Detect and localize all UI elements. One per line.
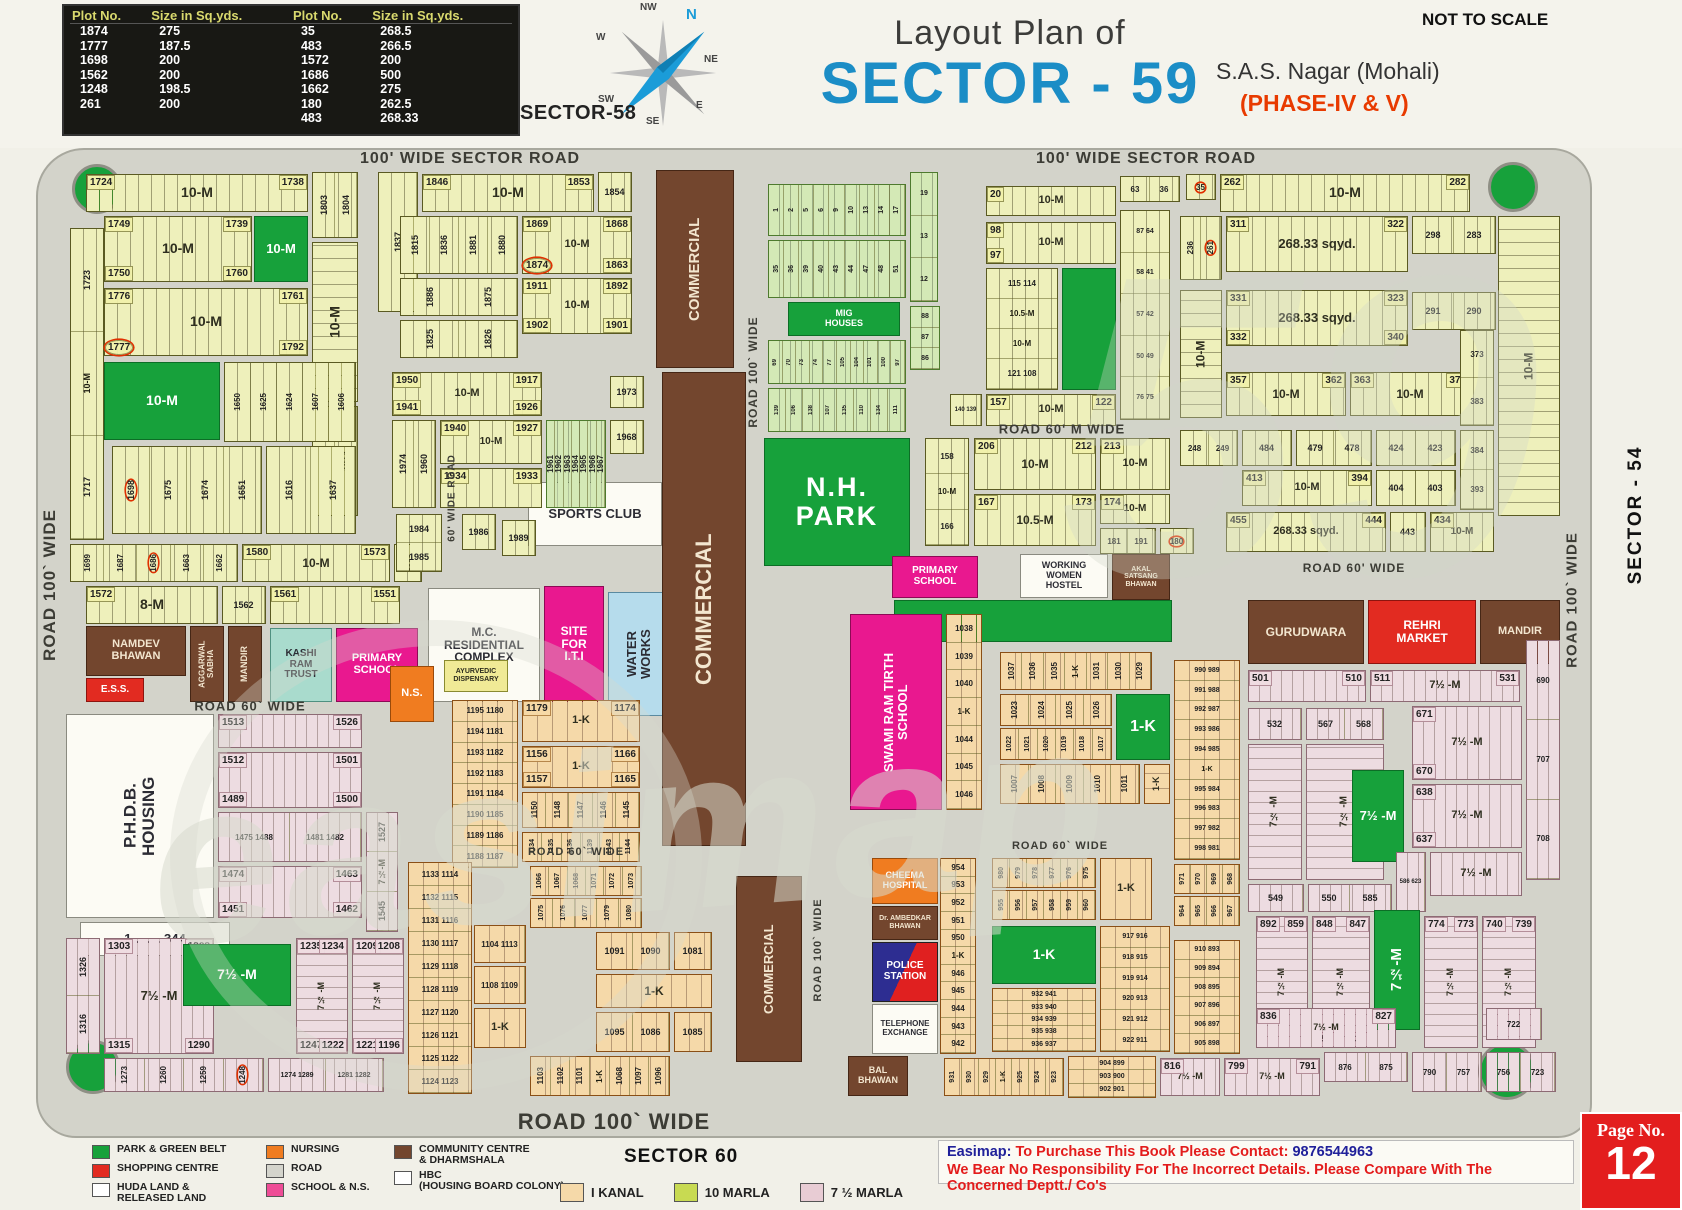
publisher-text: To Purchase This Book Please Contact:: [1016, 1144, 1289, 1160]
legend-label: SHOPPING CENTRE: [117, 1163, 219, 1174]
site-for-iti: SITE FOR I.T.I: [544, 586, 604, 702]
plot-block: 10-M413394: [1242, 470, 1372, 506]
layout-plan-page: 10-M172417381803180410-M1793181410-M1749…: [0, 0, 1682, 1210]
road-label: ROAD 100` WIDE: [1564, 532, 1581, 668]
commercial-north: COMMERCIAL: [656, 170, 734, 368]
plot-block: 910 893909 894908 895907 896906 897905 8…: [1174, 940, 1240, 1054]
plot-block: 10-M434: [1430, 512, 1494, 552]
legend-label: PARK & GREEN BELT: [117, 1144, 226, 1155]
plot-block: 10-M20: [986, 186, 1116, 216]
plot-block: 424423: [1376, 430, 1456, 466]
plot-block: 236261: [1180, 216, 1222, 280]
legend-label: 7 ½ MARLA: [831, 1187, 903, 1198]
plot-block: 550585: [1308, 884, 1392, 912]
legend-swatch: [800, 1183, 824, 1202]
rehri-market: REHRI MARKET: [1368, 600, 1476, 664]
plot-block: 7½ -M511531: [1370, 670, 1520, 702]
table-row: 483268.33: [70, 111, 512, 126]
legend-label: HBC (HOUSING BOARD COLONY): [419, 1170, 564, 1192]
plot-block: 18031804: [312, 172, 358, 238]
table-row: 1248198.51662275: [70, 82, 512, 97]
plot-block: 172310-M1717: [70, 228, 104, 540]
plot-block: 15611551: [270, 586, 400, 624]
plot-block: 888786: [910, 306, 940, 370]
plot-block: 115 11410.5-M10-M121 108: [986, 268, 1058, 390]
plot-block: 10-M1869186818741863: [522, 216, 632, 274]
compass-direction-e: E: [696, 100, 703, 111]
plot-block: 1-K: [992, 926, 1096, 984]
map-title-small: Layout Plan of: [850, 14, 1170, 53]
plot-block: 7½ -M799791: [1224, 1058, 1320, 1096]
plot-block: 1562: [222, 586, 266, 624]
plot-block: 722: [1486, 1008, 1542, 1040]
road-label: ROAD 60' WIDE: [1303, 561, 1406, 575]
road-label: ROAD 100` WIDE: [812, 898, 824, 1001]
plot-block: 10-M1749173917501760: [104, 216, 252, 282]
bal-bhawan: BAL BHAWAN: [848, 1056, 908, 1096]
plot-block: 16991687168616631662: [70, 544, 238, 582]
plot-block: 8-M1572: [86, 586, 218, 624]
not-to-scale-label: NOT TO SCALE: [1422, 10, 1602, 30]
plot-block: 1-K: [1116, 694, 1170, 760]
legend-label: NURSING: [291, 1144, 339, 1155]
plot-block: 10-M363372: [1350, 372, 1470, 416]
plot-block: 876875: [1324, 1052, 1408, 1082]
plot-block: 7½ -M836827: [1256, 1008, 1396, 1048]
plot-block: 1968: [610, 420, 644, 454]
legend-label: ROAD: [291, 1163, 322, 1174]
legend-item: I KANAL: [560, 1182, 644, 1202]
plot-block: 10-M17241738: [86, 174, 308, 212]
plot-block: 990 989991 988992 987993 986994 9851-K99…: [1174, 660, 1240, 860]
plot-block: 7½ -M: [183, 944, 291, 1006]
plot-block: 1-K11791174: [522, 700, 640, 742]
plot-block: 443: [1390, 512, 1426, 552]
ess: E.S.S.: [86, 678, 144, 702]
table-row: 1777187.5483266.5: [70, 39, 512, 54]
legend-swatch: [674, 1183, 698, 1202]
mandir-1: MANDIR: [228, 626, 262, 702]
legend-swatch: [92, 1183, 110, 1197]
plot-block: 10-M: [104, 362, 220, 440]
gurudwara: GURUDWARA: [1248, 600, 1364, 664]
legend-label: I KANAL: [591, 1187, 644, 1198]
nh-park: N.H. PARK: [764, 438, 910, 566]
table-header: Plot No.: [70, 8, 149, 24]
plot-block: 1195 11801194 11811193 11821192 11831191…: [452, 700, 518, 868]
publisher-note: Easimap: To Purchase This Book Please Co…: [938, 1140, 1574, 1184]
plot-size-table: Plot No.Size in Sq.yds.Plot No.Size in S…: [62, 4, 520, 136]
plot-block: 980979978977976975: [992, 858, 1096, 888]
plot-block: 955956957958959960: [992, 890, 1096, 920]
plot-block: 7½ -M816: [1160, 1058, 1220, 1096]
plot-block: 11501148114711461145: [522, 792, 640, 828]
plot-block: 16161637: [266, 446, 356, 534]
plot-block: 10-M357362: [1226, 372, 1346, 416]
commercial-south: COMMERCIAL: [736, 876, 802, 1062]
plot-block: 16501625162416071606: [224, 362, 356, 442]
plot-block: 15277½-M1545: [366, 812, 398, 932]
plot-block: 1973: [610, 376, 644, 408]
legend-label: HUDA LAND & RELEASED LAND: [117, 1182, 206, 1204]
plot-block: [1062, 268, 1116, 390]
plot-block: 7½ -M: [1430, 852, 1522, 896]
table-header: Size in Sq.yds.: [149, 8, 291, 24]
plot-block: 181191: [1100, 528, 1156, 554]
commercial-middle: COMMERCIAL: [662, 372, 746, 846]
compass-direction-ne: NE: [704, 54, 718, 65]
plot-block: 384393: [1460, 430, 1494, 510]
plot-block: 10-M174: [1100, 494, 1170, 524]
primary-school-2: PRIMARY SCHOOL: [892, 556, 978, 598]
legend-item: HUDA LAND & RELEASED LAND: [92, 1182, 226, 1204]
plot-block: 7½ -M774773: [1424, 916, 1478, 1048]
legend-label: SCHOOL & N.S.: [291, 1182, 370, 1193]
plot-block: 106610671068107110721073: [530, 866, 642, 896]
plot-block: 10-M: [254, 216, 308, 282]
plot-block: 1-K: [474, 1008, 526, 1048]
plot-block: 532: [1248, 708, 1302, 740]
plot-block: 373383: [1460, 330, 1494, 426]
plot-block: 10071008100910101011: [1000, 764, 1140, 804]
plot-block: 1108 1109: [474, 966, 526, 1004]
plot-block: 1854: [598, 172, 632, 212]
plot-block: 10-M213: [1100, 438, 1170, 490]
plot-block: 9549539529519501-K946945944943942: [940, 858, 976, 1054]
plot-block: 1961196219631964196519661967: [546, 420, 606, 508]
legend-item: COMMUNITY CENTRE & DHARMSHALA: [394, 1144, 564, 1166]
plot-block: 10911090: [596, 932, 670, 970]
plot-block: 291290: [1412, 292, 1496, 330]
plot-block: 7½ -M: [1248, 744, 1302, 880]
plot-block: 7½ -M1235123412471222: [296, 938, 348, 1054]
plot-block: 10-M18461853: [422, 174, 594, 212]
legend-swatch: [560, 1183, 584, 1202]
plot-block: 10-M: [1498, 216, 1560, 516]
disclaimer-text: We Bear No Responsibility For The Incorr…: [947, 1162, 1565, 1194]
legend-swatch: [394, 1171, 412, 1185]
plot-block: 102210211020101910181017: [1000, 728, 1112, 760]
plot-block: 10951086: [596, 1012, 670, 1052]
dr-ambedkar-bhawan: Dr. AMBEDKAR BHAWAN: [872, 906, 938, 940]
plot-block: 140 139: [950, 394, 982, 426]
legend-item: NURSING: [266, 1144, 370, 1159]
plot-block: 1256910131417: [768, 184, 906, 236]
plot-block: 10.5-M167173: [974, 494, 1096, 546]
plot-block: 586 623: [1396, 852, 1426, 912]
page-number-value: 12: [1582, 1141, 1680, 1185]
plot-block: 1104 1113: [474, 925, 526, 963]
plot-block: 10-M1911189219021901: [522, 278, 632, 334]
plot-block: 248249: [1180, 430, 1238, 466]
plot-block: 10-M15801573: [242, 544, 390, 582]
legend-swatch: [266, 1164, 284, 1178]
plot-block: 404403: [1376, 470, 1456, 506]
plot-block: 7½ -M671670: [1412, 706, 1522, 780]
road-label: ROAD 60` WIDE: [1012, 840, 1108, 852]
road-label: ROAD 60' M WIDE: [999, 422, 1125, 437]
plot-block: 904 899903 900902 901: [1068, 1056, 1156, 1098]
sector-60-label: SECTOR 60: [624, 1146, 738, 1168]
plot-block: 1273126012591248: [104, 1058, 264, 1092]
plot-block: 10-M9897: [986, 222, 1116, 264]
plot-block: 917 916918 915919 914920 913921 912922 9…: [1100, 926, 1170, 1052]
legend-column-2: NURSINGROADSCHOOL & N.S.: [266, 1144, 370, 1201]
plot-block: 964965966967: [1174, 896, 1240, 926]
plot-block: 268.33 sqyd.455444: [1226, 512, 1386, 552]
legend-item: PARK & GREEN BELT: [92, 1144, 226, 1159]
plot-block: 567568: [1306, 708, 1384, 740]
plot-block: 15810-M166: [925, 438, 969, 546]
plot-block: 1037103610351-K103110301029: [1000, 652, 1152, 690]
plot-block: 10751076107710791080: [530, 898, 642, 928]
ayurvedic-dispensary: AYURVEDIC DISPENSARY: [444, 660, 508, 692]
plot-block: 7½ -M: [1352, 770, 1404, 862]
plot-block: 191312: [910, 172, 938, 302]
legend-swatch: [266, 1145, 284, 1159]
road-label: ROAD 100` WIDE: [40, 509, 60, 661]
table-row: 16982001572200: [70, 53, 512, 68]
telephone-exchange: TELEPHONE EXCHANGE: [872, 1004, 938, 1054]
plot-block: 1103110211011-K106810971096: [530, 1056, 670, 1096]
table-header: Plot No.: [291, 8, 370, 24]
plot-block: 1-K: [1144, 764, 1170, 804]
plot-block: 484: [1242, 430, 1292, 466]
nursing-site: N.S.: [390, 666, 434, 722]
plot-block: 10-M1776176117771792: [104, 288, 308, 356]
plot-block: 7½ -M1209120812211196: [352, 938, 404, 1054]
road-label: ROAD 100` WIDE: [746, 316, 760, 427]
plot-block: 1081: [674, 932, 712, 970]
plot-block: 549: [1248, 884, 1304, 912]
map-title: SECTOR - 59: [800, 50, 1220, 117]
plot-block: 15131526: [218, 714, 362, 748]
plot-block: 353639404344474851: [768, 240, 906, 298]
legend-item: 7 ½ MARLA: [800, 1182, 903, 1202]
road-label: ROAD 60` WIDE: [194, 699, 305, 714]
legend-label: COMMUNITY CENTRE & DHARMSHALA: [419, 1144, 530, 1166]
cheema-hospital: CHEEMA HOSPITAL: [872, 858, 938, 904]
sector-label: SECTOR - 54: [1625, 446, 1647, 585]
legend-item: SHOPPING CENTRE: [92, 1163, 226, 1178]
table-row: 15622001686500: [70, 68, 512, 83]
plot-block: 1989: [502, 520, 536, 556]
plot-block: 18251826: [400, 320, 518, 358]
plot-block: 501510: [1248, 670, 1366, 702]
road-label: ROAD 60` WIDE: [528, 846, 624, 858]
plot-block: 10-M206212: [974, 438, 1096, 490]
legend-swatch: [266, 1183, 284, 1197]
plot-block: 1698167516741651: [112, 446, 262, 534]
plot-block: 1133 11141132 11151131 11161130 11171129…: [408, 862, 472, 1094]
plot-block: 1-K: [1100, 858, 1152, 920]
plot-block: 268.33 sqyd.331323332340: [1226, 290, 1408, 346]
namdev-bhawan: NAMDEV BHAWAN: [86, 626, 186, 676]
legend-label: 10 MARLA: [705, 1187, 770, 1198]
legend-swatch: [92, 1145, 110, 1159]
plot-block: 1815183618811880: [400, 216, 518, 274]
plot-block: 19841985: [396, 514, 442, 572]
aggarwal-sabha: AGGARWAL SABHA: [190, 626, 224, 702]
plot-block: 13261316: [66, 938, 100, 1054]
plot-block: 697073747710510410110097: [768, 340, 906, 384]
road-label: 100' WIDE SECTOR ROAD: [360, 150, 580, 168]
phdb-housing: P.H.D.B. HOUSING: [66, 714, 214, 918]
plot-block: 1085: [674, 1012, 712, 1052]
compass-direction-nw: NW: [640, 2, 657, 13]
publisher-brand: Easimap:: [947, 1144, 1011, 1160]
legend-swatch: [394, 1145, 412, 1159]
legend-item: SCHOOL & N.S.: [266, 1182, 370, 1197]
legend-column-3: COMMUNITY CENTRE & DHARMSHALAHBC (HOUSIN…: [394, 1144, 564, 1196]
plot-block: 971970969968: [1174, 864, 1240, 894]
table-row: 187427535268.5: [70, 24, 512, 39]
compass-direction-w: W: [596, 32, 605, 43]
plot-block: 690707708: [1526, 640, 1560, 880]
plot-block: 19741960: [392, 420, 436, 508]
plot-block: 180: [1160, 528, 1194, 554]
legend-item: 10 MARLA: [674, 1182, 770, 1202]
map-subtitle: S.A.S. Nagar (Mohali): [1216, 58, 1456, 85]
size-legend: I KANAL10 MARLA7 ½ MARLA: [560, 1182, 903, 1206]
plot-block: 18861875: [400, 278, 518, 316]
footer: PARK & GREEN BELTSHOPPING CENTREHUDA LAN…: [0, 1138, 1682, 1210]
sector-58-label: SECTOR-58: [520, 102, 640, 125]
plot-block: 7½ -M638637: [1412, 784, 1522, 848]
road-label: 60' WIDE ROAD: [447, 454, 458, 542]
akal-satsang-bhawan: AKAL SATSANG BHAWAN: [1112, 554, 1170, 600]
plot-block: 1475 14881481 1482: [218, 812, 362, 862]
plot-block: 1274 12891281 1282: [268, 1058, 384, 1092]
table-row: 261200180262.5: [70, 97, 512, 112]
compass-direction-n: N: [686, 6, 697, 23]
plot-block: 1-K: [596, 974, 712, 1008]
road-label: ROAD 100` WIDE: [518, 1109, 710, 1135]
plot-block: 6336: [1120, 176, 1180, 202]
plot-block: 932 941933 940934 939935 938936 937: [992, 988, 1096, 1052]
working-women-hostel: WORKING WOMEN HOSTEL: [1020, 554, 1108, 598]
kashi-ram-trust: KASHI RAM TRUST: [270, 628, 332, 702]
page-number-box: Page No. 12: [1580, 1112, 1682, 1210]
phase-label: (PHASE-IV & V): [1240, 90, 1460, 117]
plot-block: 1512150114891500: [218, 752, 362, 808]
mig-houses: MIG HOUSES: [788, 302, 900, 336]
swami-ram-tirth-school: SWAMI RAM TIRTH SCHOOL: [850, 614, 942, 810]
water-works: WATER WORKS: [608, 592, 670, 716]
plot-block: 1038103910401-K104410451046: [946, 614, 982, 810]
legend-item: HBC (HOUSING BOARD COLONY): [394, 1170, 564, 1192]
roundabout-top-right: [1488, 162, 1538, 212]
plot-block: 10-M262282: [1220, 174, 1470, 212]
plot-block: 35: [1186, 174, 1216, 200]
plot-block: 268.33 sqyd.311322: [1226, 216, 1408, 272]
police-station: POLICE STATION: [872, 942, 938, 1002]
header: Plot No.Size in Sq.yds.Plot No.Size in S…: [0, 0, 1682, 148]
plot-block: 139106138107135110134111: [768, 388, 906, 432]
legend-column-1: PARK & GREEN BELTSHOPPING CENTREHUDA LAN…: [92, 1144, 226, 1208]
plot-block: 87 6458 4157 4250 4976 75: [1120, 210, 1170, 420]
legend-item: ROAD: [266, 1163, 370, 1178]
plot-block: 298283: [1412, 216, 1496, 254]
plot-block: 10-M1950191719411926: [392, 372, 542, 416]
road-label: 100' WIDE SECTOR ROAD: [1036, 150, 1256, 168]
table-header: Size in Sq.yds.: [370, 8, 512, 24]
plot-block: 479478: [1296, 430, 1372, 466]
legend-swatch: [92, 1164, 110, 1178]
plot-block: 1023102410251026: [1000, 694, 1112, 726]
plot-block: 10-M: [1180, 290, 1222, 418]
publisher-phone: 9876544963: [1292, 1144, 1373, 1160]
plot-block: 1-K1156116611571165: [522, 746, 640, 788]
plot-block: 9319309291-K925924923: [944, 1058, 1064, 1096]
plot-block: 756723: [1486, 1052, 1556, 1092]
plot-block: 1474146314511462: [218, 866, 362, 918]
plot-block: 1986: [462, 514, 496, 550]
plot-block: 790757: [1412, 1052, 1482, 1092]
compass-direction-se: SE: [646, 116, 659, 127]
